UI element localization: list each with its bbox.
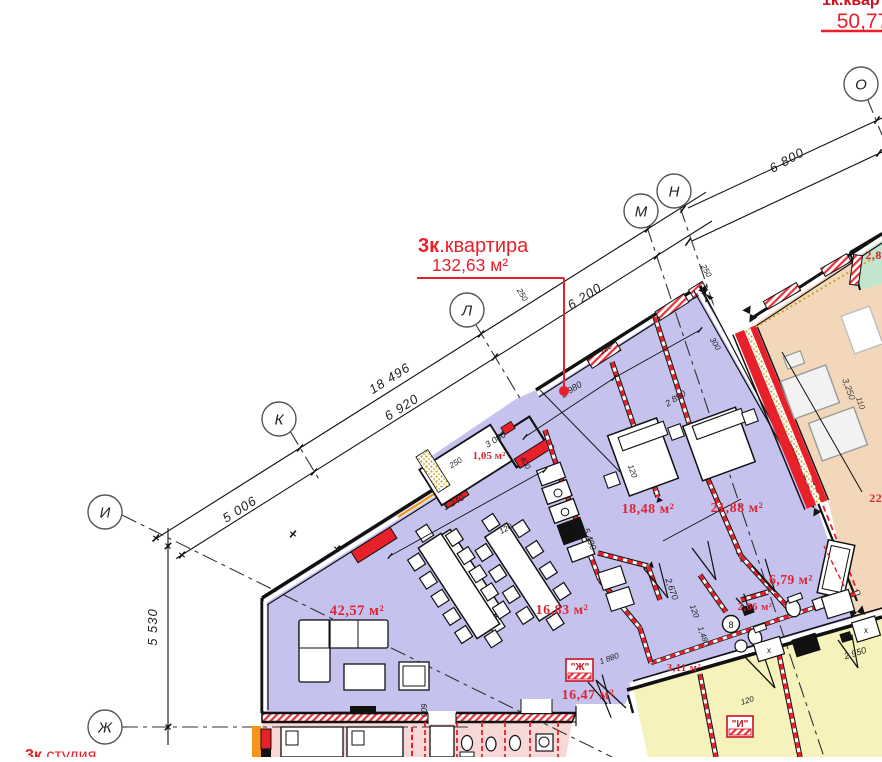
svg-text:Ж: Ж <box>97 720 113 737</box>
svg-text:3к.квартира: 3к.квартира <box>418 235 529 257</box>
svg-text:3к.студия: 3к.студия <box>25 747 96 757</box>
svg-text:50,77: 50,77 <box>837 10 882 33</box>
svg-text:1,05 м²: 1,05 м² <box>473 450 506 462</box>
svg-text:132,63 м²: 132,63 м² <box>432 255 508 275</box>
svg-text:3,11 м²: 3,11 м² <box>667 663 701 674</box>
svg-text:К: К <box>275 412 285 429</box>
svg-text:x: x <box>864 626 868 635</box>
svg-text:16,83 м²: 16,83 м² <box>536 603 589 618</box>
svg-text:М: М <box>635 204 648 221</box>
svg-text:18,48 м²: 18,48 м² <box>622 502 675 517</box>
svg-text:2,66 м²: 2,66 м² <box>738 602 773 613</box>
svg-text:"Ж": "Ж" <box>571 662 590 673</box>
svg-text:2,83 м²: 2,83 м² <box>865 248 882 262</box>
svg-text:Н: Н <box>669 184 680 201</box>
svg-text:1к.квартира: 1к.квартира <box>822 0 882 9</box>
svg-text:8: 8 <box>728 620 733 630</box>
svg-text:21,88 м²: 21,88 м² <box>711 501 764 516</box>
svg-text:О: О <box>855 77 867 94</box>
svg-text:16,47 м²: 16,47 м² <box>562 688 615 703</box>
svg-text:6,79 м²: 6,79 м² <box>769 572 813 587</box>
svg-text:И: И <box>100 505 111 522</box>
svg-text:5 530: 5 530 <box>145 608 160 646</box>
svg-text:"И": "И" <box>732 719 749 730</box>
svg-text:600: 600 <box>419 703 428 717</box>
svg-text:x: x <box>767 646 771 655</box>
svg-text:22,41: 22,41 <box>869 491 882 505</box>
svg-text:Л: Л <box>461 303 473 320</box>
svg-text:42,57 м²: 42,57 м² <box>330 603 384 619</box>
